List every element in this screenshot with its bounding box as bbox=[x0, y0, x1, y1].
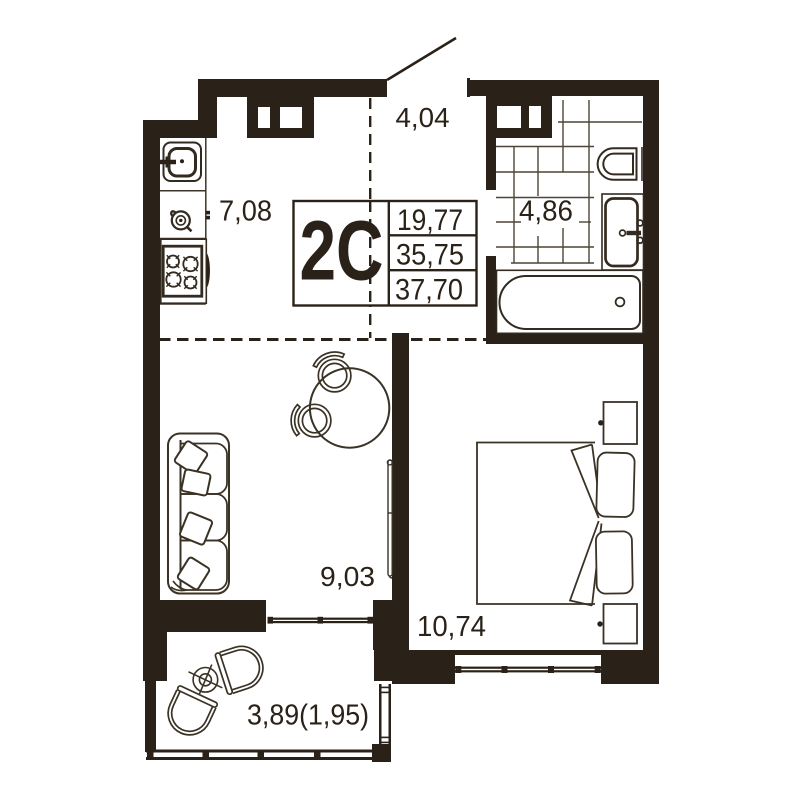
svg-text:35,75: 35,75 bbox=[396, 239, 464, 272]
svg-text:7,08: 7,08 bbox=[219, 196, 272, 228]
svg-text:4,04: 4,04 bbox=[396, 102, 450, 133]
svg-text:19,77: 19,77 bbox=[397, 204, 463, 237]
svg-text:10,74: 10,74 bbox=[417, 611, 486, 643]
svg-text:3,89(1,95): 3,89(1,95) bbox=[247, 700, 369, 732]
svg-text:4,86: 4,86 bbox=[519, 196, 573, 228]
svg-text:37,70: 37,70 bbox=[395, 274, 463, 307]
svg-text:9,03: 9,03 bbox=[320, 561, 375, 592]
